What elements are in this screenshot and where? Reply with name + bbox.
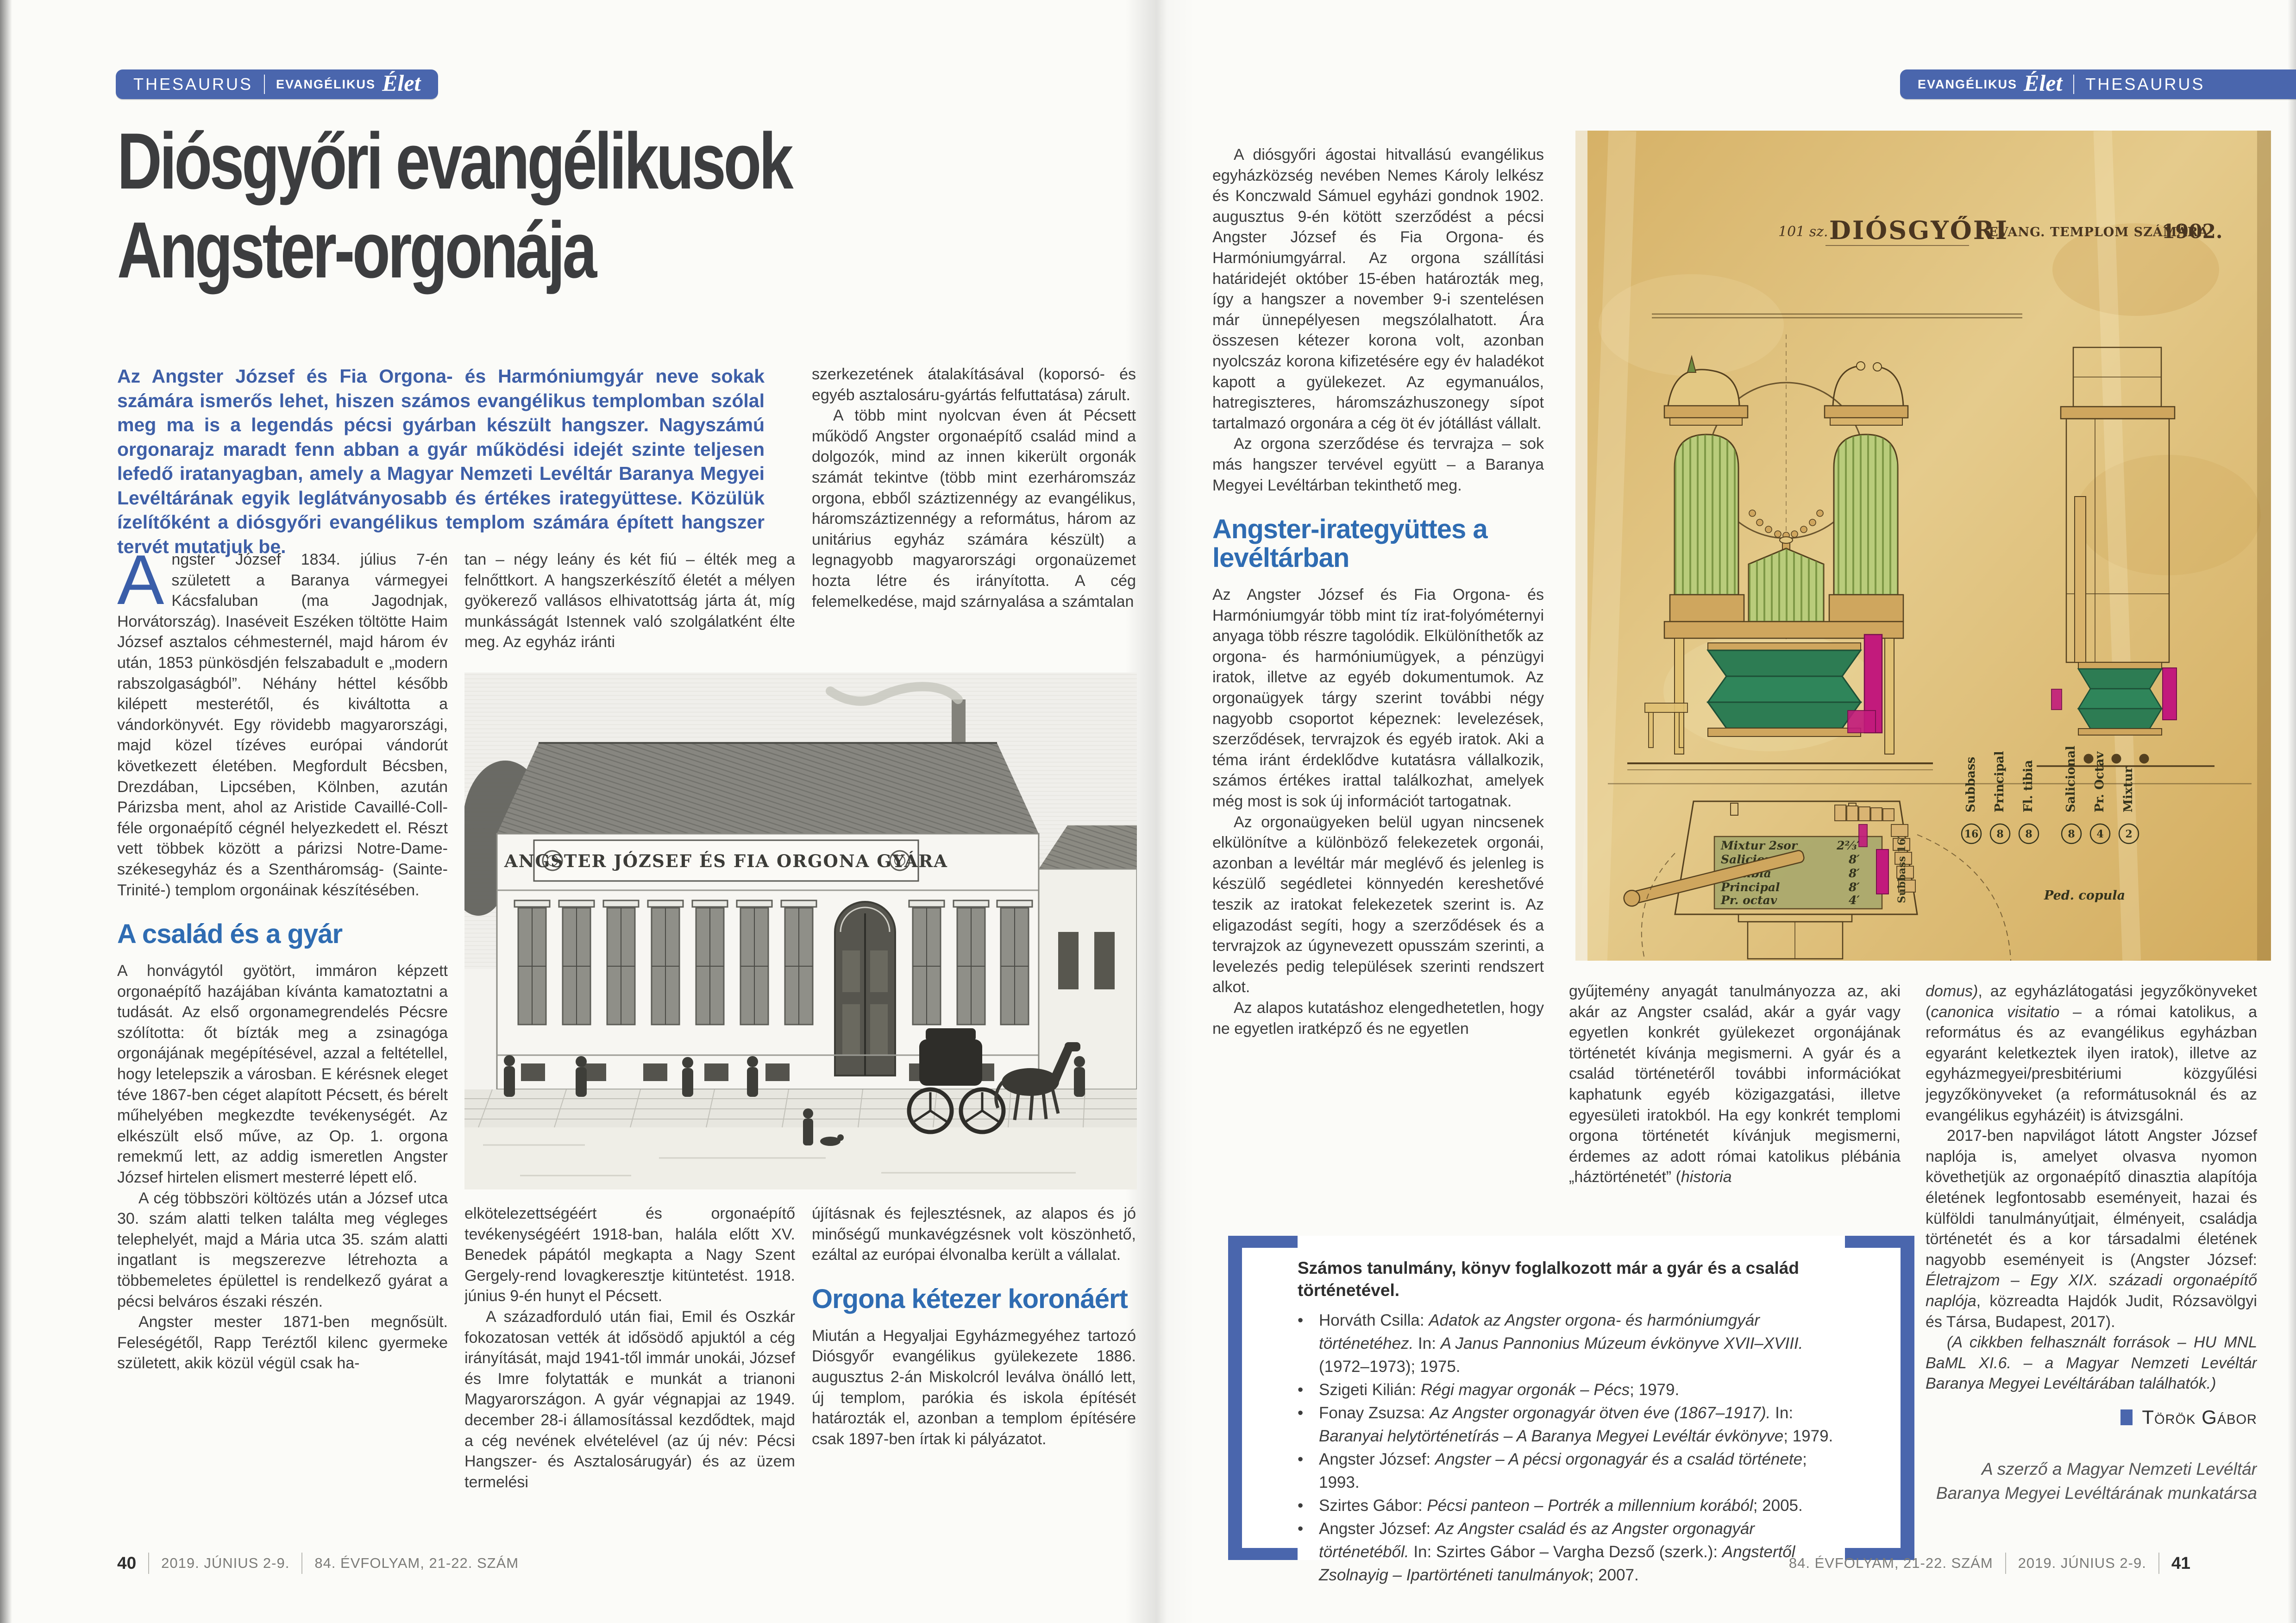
paragraph: Angster József 1834. július 7-én születe… (117, 549, 448, 900)
bibliography-box: Számos tanulmány, könyv foglalkozott már… (1228, 1236, 1914, 1560)
drop-cap: A (117, 553, 164, 607)
organ-plan-drawing: 101 sz. DIÓSGYŐRI EVANG. TEMPLOM SZÁMÁRA… (1575, 131, 2271, 961)
magazine-spread-scan: THESAURUS EVANGÉLIKUS Élet Diósgyőri eva… (0, 0, 2296, 1623)
section-heading-organ-2000: Orgona kétezer koronáért (812, 1285, 1136, 1314)
drawing-title-place: DIÓSGYŐRI (1829, 215, 2008, 245)
annex-building (1039, 825, 1137, 1089)
article-title-line2: Angster-orgonája (117, 206, 791, 295)
entrance-door (835, 902, 895, 1076)
footer-divider (148, 1553, 149, 1574)
section-heading-archive: Angster-irategyüttes a levéltárban (1212, 515, 1544, 572)
right-column-2: gyűjtemény anyagát tanulmányozza az, aki… (1569, 981, 1901, 1215)
bib-author: Angster József: (1319, 1520, 1435, 1538)
organ-plan-svg: 101 sz. DIÓSGYŐRI EVANG. TEMPLOM SZÁMÁRA… (1575, 131, 2271, 961)
section-heading-family-factory: A család és a gyár (117, 920, 448, 949)
factory-engraving-svg: ANGSTER JÓZSEF ÉS FIA ORGONA GYÁRA (464, 673, 1137, 1189)
bib-title: Régi magyar orgonák – Pécs (1421, 1381, 1630, 1399)
factory-engraving-illustration: ANGSTER JÓZSEF ÉS FIA ORGONA GYÁRA (464, 673, 1137, 1189)
paper-left-margin (1575, 131, 1587, 961)
box-bracket-right (1845, 1236, 1914, 1560)
section-badge-right: EVANGÉLIKUS Élet THESAURUS (1900, 69, 2296, 99)
paragraph: Az alapos kutatáshoz elengedhetetlen, ho… (1212, 998, 1544, 1039)
article-lead: Az Angster József és Fia Orgona- és Harm… (117, 364, 765, 559)
left-pipe-tower (1664, 357, 1748, 622)
bellows-side (2078, 662, 2162, 735)
register-pitch: 4′ (1849, 893, 1860, 907)
bullet-icon: • (1298, 1402, 1319, 1425)
register-pitch: 8′ (1848, 853, 1860, 866)
stop-number: 8 (2025, 828, 2032, 840)
paragraph: A cég többszöri költözés után a József u… (117, 1188, 448, 1312)
stop-label: Principal (1993, 751, 2007, 812)
bib-title: A Janus Pannonius Múzeum évkönyve XVII–X… (1441, 1334, 1803, 1352)
paragraph: A több mint nyolcvan éven át Pécsett műk… (812, 405, 1136, 612)
bib-text: ; 1979. (1783, 1427, 1833, 1445)
bibliography-item: •Angster József: Az Angster család és az… (1298, 1517, 1838, 1587)
paragraph-italic: canonica visitatio (1931, 1003, 2059, 1021)
article-title: Diósgyőri evangélikusok Angster-orgonája (117, 117, 791, 295)
paragraph-italic: domus) (1926, 982, 1978, 1000)
paragraph-text: 2017-ben napvilágot látott Angster Józse… (1926, 1127, 2257, 1269)
paragraph: szerkezetének átalakításával (koporsó- é… (812, 364, 1136, 405)
bullet-icon: • (1298, 1309, 1319, 1332)
right-column-3: domus), az egyházlátogatási jegyzőkönyve… (1926, 981, 2257, 1532)
bibliography-list: •Horváth Csilla: Adatok az Angster orgon… (1298, 1309, 1838, 1587)
stop-number: 16 (1964, 828, 1979, 840)
paragraph-italic: historia (1681, 1168, 1732, 1186)
badge-brand-logo: Élet (2024, 69, 2062, 96)
badge-brand-small: EVANGÉLIKUS (276, 77, 376, 92)
register-pitch: 8′ (1848, 881, 1860, 894)
bib-author: Horváth Csilla: (1319, 1311, 1429, 1329)
bib-author: Szigeti Kilián: (1319, 1381, 1421, 1399)
bullet-icon: • (1298, 1378, 1319, 1402)
bib-text: In: Szirtes Gábor – Vargha Dezső (szerk.… (1409, 1543, 1722, 1561)
register-name: Mixtur 2sor (1720, 839, 1798, 852)
bib-text: (1972–1973); 1975. (1319, 1358, 1461, 1376)
bib-author: Angster József: (1319, 1450, 1435, 1468)
issue-volume: 84. ÉVFOLYAM, 21-22. SZÁM (1789, 1555, 1993, 1572)
paragraph: újításnak és fejlesztésnek, az alapos és… (812, 1203, 1136, 1265)
footer-divider (301, 1553, 302, 1574)
paragraph: A diósgyőri ágostai hitvallású evangélik… (1212, 145, 1544, 434)
bib-text: ; 2007. (1589, 1566, 1639, 1584)
plan-subbass-label: Subbass 16′ (1896, 836, 1908, 903)
bib-title: Angster – A pécsi orgonagyár és a család… (1435, 1450, 1802, 1468)
register-name: Pr. octav (1720, 893, 1777, 907)
article-title-line1: Diósgyőri evangélikusok (117, 117, 791, 206)
issue-volume: 84. ÉVFOLYAM, 21-22. SZÁM (314, 1555, 519, 1572)
right-column-1: A diósgyőri ágostai hitvallású evangélik… (1212, 145, 1544, 1210)
section-badge-left: THESAURUS EVANGÉLIKUS Élet (116, 69, 438, 99)
badge-brand-logo: Élet (382, 69, 420, 96)
footer-divider (2158, 1553, 2159, 1574)
plan-duct-magenta (1876, 849, 1888, 894)
left-column-1: Angster József 1834. július 7-én születe… (117, 549, 448, 1545)
duct-side-magenta (2163, 668, 2177, 720)
bullet-icon: • (1298, 1517, 1319, 1541)
stop-label: Subbass (1964, 757, 1978, 812)
paragraph: Az orgonaügyeken belül ugyan nincsenek e… (1212, 812, 1544, 998)
paragraph: domus), az egyházlátogatási jegyzőkönyve… (1926, 981, 2257, 1126)
factory-banner-text: ANGSTER JÓZSEF ÉS FIA ORGONA GYÁRA (504, 851, 948, 871)
bib-text: ; 1979. (1630, 1381, 1679, 1399)
stop-label: Fl. tibia (2021, 760, 2035, 812)
bullet-icon: • (1298, 1494, 1319, 1517)
register-name: Principal (1720, 881, 1780, 894)
stop-label: Salicional (2064, 746, 2078, 812)
byline: Török Gábor (1926, 1407, 2257, 1428)
register-pitch: 8′ (1848, 867, 1860, 880)
bellows-front (1708, 643, 1861, 736)
author-credit: A szerző a Magyar Nemzeti Levéltár Baran… (1926, 1457, 2257, 1505)
stop-number: 2 (2125, 828, 2132, 840)
bib-text: In: (1413, 1334, 1440, 1352)
author-name: Török Gábor (2142, 1407, 2257, 1428)
badge-divider (2073, 75, 2074, 94)
bib-title: Baranyai helytörténetírás – A Baranya Me… (1319, 1427, 1783, 1445)
stop-number: 4 (2096, 828, 2103, 840)
paragraph: elkötelezettségéért és orgonaépítő tevék… (464, 1203, 795, 1307)
bib-text: In: (1770, 1404, 1793, 1422)
paragraph: Az Angster József és Fia Orgona- és Harm… (1212, 585, 1544, 812)
scan-edge-right (2288, 0, 2296, 1623)
paragraph: Miután a Hegyaljai Egyházmegyéhez tartoz… (812, 1326, 1136, 1450)
paragraph: A századforduló után fiai, Emil és Oszká… (464, 1307, 795, 1492)
paragraph-text: gyűjtemény anyagát tanulmányozza az, aki… (1569, 982, 1901, 1186)
paragraph-text: – a római katolikus, a református és az … (1926, 1003, 2257, 1124)
page-number: 41 (2171, 1554, 2190, 1573)
box-bracket-left (1228, 1236, 1298, 1560)
left-column-2-bottom: elkötelezettségéért és orgonaépítő tevék… (464, 1203, 795, 1541)
issue-date: 2019. JÚNIUS 2-9. (2018, 1555, 2146, 1572)
bib-text: ; 2005. (1753, 1497, 1803, 1515)
paragraph: A honvágytól gyötört, immáron képzett or… (117, 961, 448, 1188)
stop-number: 8 (1996, 828, 2003, 840)
left-column-3-bottom: újításnak és fejlesztésnek, az alapos és… (812, 1203, 1136, 1541)
left-column-3-top: szerkezetének átalakításával (koporsó- é… (812, 364, 1136, 642)
bibliography-content: Számos tanulmány, könyv foglalkozott már… (1298, 1257, 1838, 1587)
left-column-2-top: tan – négy leány és két fiú – élték meg … (464, 549, 795, 665)
bib-title: Pécsi panteon – Portrék a millennium kor… (1427, 1497, 1753, 1515)
factory-banner: ANGSTER JÓZSEF ÉS FIA ORGONA GYÁRA (504, 840, 948, 881)
bullet-icon: • (1298, 1448, 1319, 1471)
stop-label: Mixtur (2121, 767, 2135, 812)
paper-right-edge (2257, 131, 2271, 961)
page-number: 40 (117, 1554, 136, 1573)
drawing-title-number: 101 sz. (1778, 224, 1828, 240)
drawing-title-year: 1902. (2162, 220, 2223, 243)
wind-duct-elbow (1848, 711, 1876, 733)
badge-divider (264, 75, 265, 94)
paragraph: 2017-ben napvilágot látott Angster Józse… (1926, 1126, 2257, 1332)
case-leg-right (1885, 638, 1894, 754)
bib-author: Fonay Zsuzsa: (1319, 1404, 1430, 1422)
bibliography-item: •Szigeti Kilián: Régi magyar orgonák – P… (1298, 1378, 1838, 1402)
scan-edge-left (0, 0, 12, 1623)
bibliography-item: •Angster József: Angster – A pécsi orgon… (1298, 1448, 1838, 1494)
paragraph: Angster mester 1871-ben megnősült. Feles… (117, 1312, 448, 1374)
bibliography-heading: Számos tanulmány, könyv foglalkozott már… (1298, 1257, 1838, 1302)
source-note: (A cikkben felhasznált források – HU MNL… (1926, 1332, 2257, 1394)
register-pitch: 2⅔′ (1836, 839, 1860, 852)
paragraph: Az orgona szerződése és tervrajza – sok … (1212, 434, 1544, 496)
paragraph-text: ngster József 1834. július 7-én születet… (117, 551, 448, 899)
bibliography-item: •Fonay Zsuzsa: Az Angster orgonagyár ötv… (1298, 1402, 1838, 1448)
stop-number: 8 (2068, 828, 2075, 840)
page-footer-left: 40 2019. JÚNIUS 2-9. 84. ÉVFOLYAM, 21-22… (117, 1553, 519, 1574)
footer-divider (2005, 1553, 2006, 1574)
pedal-coupler-label: Ped. copula (2044, 888, 2125, 903)
bibliography-item: •Szirtes Gábor: Pécsi panteon – Portrék … (1298, 1494, 1838, 1517)
byline-square-icon (2120, 1409, 2133, 1425)
badge-brand-small: EVANGÉLIKUS (1918, 77, 2017, 92)
badge-section-label: THESAURUS (133, 75, 253, 94)
bib-title: Az Angster orgonagyár ötven éve (1867–19… (1430, 1404, 1770, 1422)
issue-date: 2019. JÚNIUS 2-9. (161, 1555, 289, 1572)
stop-label: Pr. Octav (2093, 751, 2107, 812)
bibliography-item: •Horváth Csilla: Adatok az Angster orgon… (1298, 1309, 1838, 1378)
factory-roof (497, 743, 1039, 834)
paragraph: tan – négy leány és két fiú – élték meg … (464, 549, 795, 653)
badge-section-label: THESAURUS (2085, 75, 2205, 94)
bib-author: Szirtes Gábor: (1319, 1497, 1427, 1515)
paragraph: gyűjtemény anyagát tanulmányozza az, aki… (1569, 981, 1901, 1188)
page-footer-right: 84. ÉVFOLYAM, 21-22. SZÁM 2019. JÚNIUS 2… (1789, 1553, 2190, 1574)
